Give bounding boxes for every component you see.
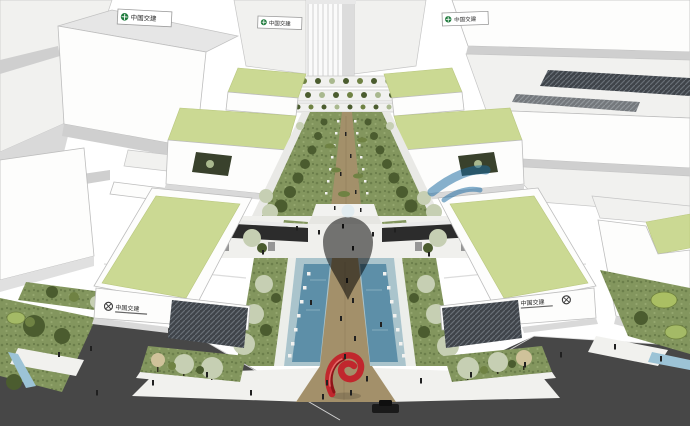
- rooftop-sign-left: 中国交建: [117, 9, 172, 27]
- rooftop-sign-text: 中国交建: [130, 13, 157, 23]
- company-sign-text: 中国交建: [520, 298, 545, 308]
- rendering-canvas: 中国交建 中国交建: [0, 0, 690, 426]
- scene-svg: 中国交建 中国交建: [0, 0, 690, 426]
- company-sign-text: 中国交建: [115, 303, 140, 313]
- rooftop-sign-right: 中国交建: [442, 11, 488, 26]
- rooftop-sign-center: 中国交建: [258, 16, 302, 30]
